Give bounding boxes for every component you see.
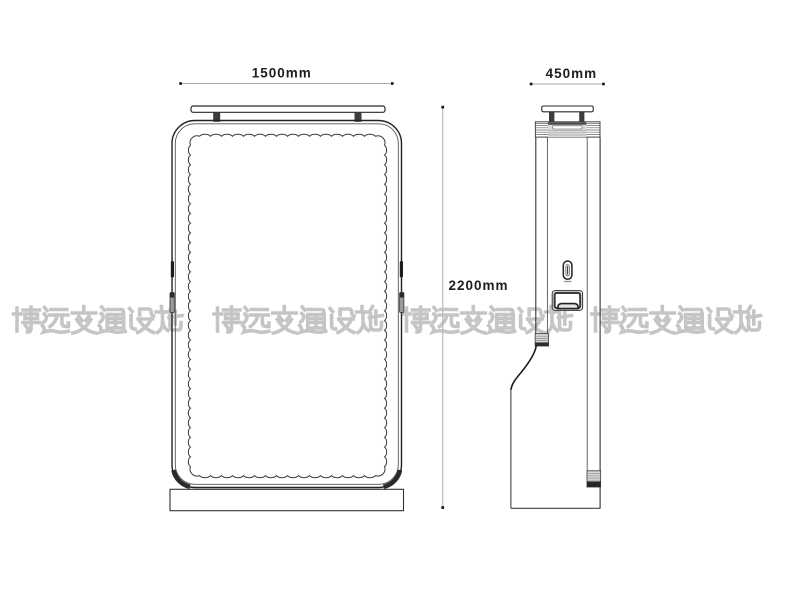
svg-text:2200mm: 2200mm [449,278,509,293]
svg-text:1500mm: 1500mm [252,66,312,81]
svg-text:450mm: 450mm [546,66,598,81]
